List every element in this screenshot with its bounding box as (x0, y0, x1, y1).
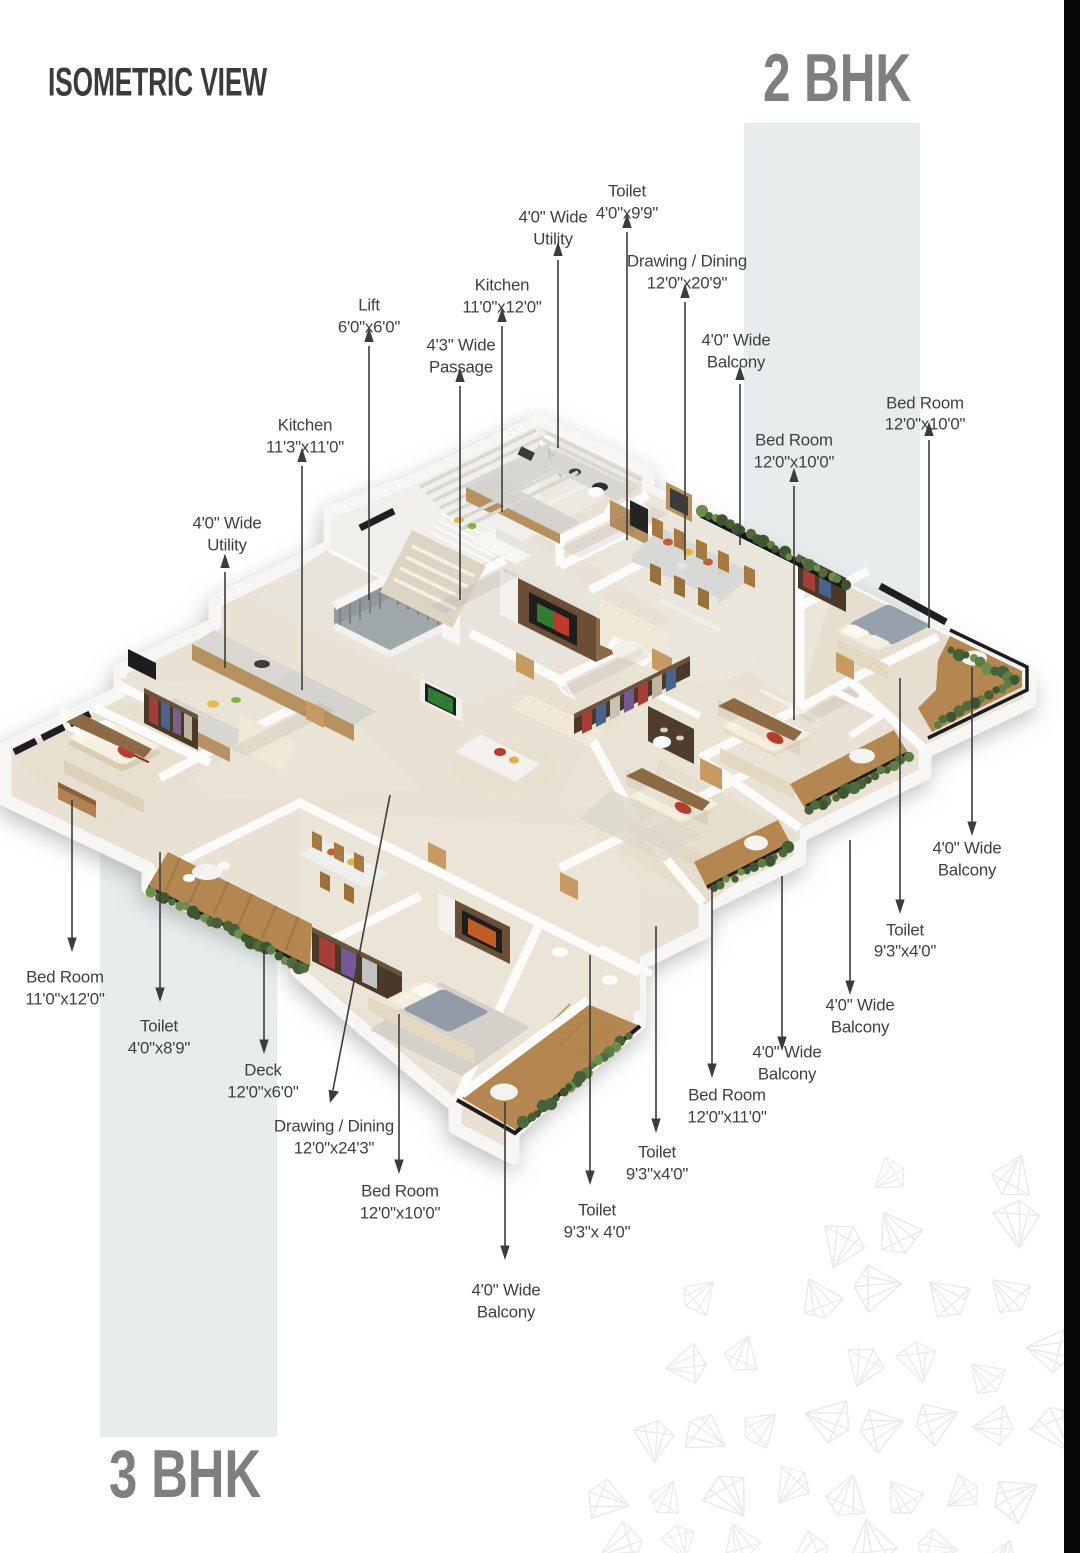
svg-text:Drawing / Dining: Drawing / Dining (627, 251, 747, 270)
svg-text:Toilet: Toilet (140, 1016, 179, 1035)
svg-text:4'0"x8'9": 4'0"x8'9" (128, 1038, 190, 1057)
svg-text:Balcony: Balcony (938, 860, 997, 879)
svg-text:Bed Room: Bed Room (688, 1085, 766, 1104)
svg-text:12'0"x20'9": 12'0"x20'9" (647, 273, 728, 292)
svg-text:Balcony: Balcony (758, 1064, 817, 1083)
svg-text:4'0" Wide: 4'0" Wide (519, 207, 588, 226)
svg-text:11'0"x12'0": 11'0"x12'0" (462, 297, 542, 316)
svg-text:Lift: Lift (358, 295, 380, 314)
svg-text:6'0"x6'0": 6'0"x6'0" (338, 317, 400, 336)
svg-text:Deck: Deck (244, 1060, 282, 1079)
svg-text:4'0" Wide: 4'0" Wide (702, 330, 771, 349)
svg-text:4'0" Wide: 4'0" Wide (826, 995, 895, 1014)
svg-text:Balcony: Balcony (477, 1302, 536, 1321)
svg-text:2 BHK: 2 BHK (763, 40, 911, 116)
svg-text:Kitchen: Kitchen (278, 415, 333, 434)
svg-text:9'3"x 4'0": 9'3"x 4'0" (564, 1222, 631, 1241)
svg-text:Toilet: Toilet (578, 1200, 617, 1219)
svg-text:ISOMETRIC VIEW: ISOMETRIC VIEW (48, 61, 267, 105)
svg-text:12'0"x10'0": 12'0"x10'0" (754, 452, 835, 471)
svg-text:Bed Room: Bed Room (755, 430, 833, 449)
svg-text:4'0"x9'9": 4'0"x9'9" (596, 203, 658, 222)
svg-text:12'0"x11'0": 12'0"x11'0" (687, 1107, 767, 1126)
svg-text:3 BHK: 3 BHK (109, 1436, 261, 1512)
svg-text:4'0" Wide: 4'0" Wide (753, 1042, 822, 1061)
svg-text:Balcony: Balcony (707, 352, 766, 371)
svg-text:Toilet: Toilet (608, 181, 647, 200)
svg-text:Balcony: Balcony (831, 1017, 890, 1036)
svg-text:Drawing / Dining: Drawing / Dining (274, 1116, 394, 1135)
svg-text:12'0"x10'0": 12'0"x10'0" (360, 1203, 441, 1222)
svg-text:4'3" Wide: 4'3" Wide (427, 335, 496, 354)
svg-text:9'3"x4'0": 9'3"x4'0" (626, 1164, 688, 1183)
svg-text:Bed Room: Bed Room (26, 967, 104, 986)
svg-text:12'0"x24'3": 12'0"x24'3" (294, 1138, 375, 1157)
svg-text:Toilet: Toilet (638, 1142, 677, 1161)
svg-text:11'0"x12'0": 11'0"x12'0" (25, 989, 105, 1008)
svg-text:Passage: Passage (429, 357, 493, 376)
svg-text:9'3"x4'0": 9'3"x4'0" (874, 941, 936, 960)
svg-text:4'0" Wide: 4'0" Wide (193, 513, 262, 532)
svg-text:12'0"x6'0": 12'0"x6'0" (227, 1082, 299, 1101)
svg-text:Utility: Utility (207, 535, 247, 554)
svg-text:4'0" Wide: 4'0" Wide (472, 1280, 541, 1299)
svg-text:Kitchen: Kitchen (475, 275, 530, 294)
svg-text:12'0"x10'0": 12'0"x10'0" (885, 414, 966, 433)
svg-text:Utility: Utility (533, 229, 573, 248)
svg-text:Toilet: Toilet (886, 920, 925, 939)
svg-text:11'3"x11'0": 11'3"x11'0" (266, 437, 344, 456)
svg-text:Bed Room: Bed Room (361, 1181, 439, 1200)
svg-text:4'0" Wide: 4'0" Wide (933, 838, 1002, 857)
svg-text:Bed Room: Bed Room (886, 393, 964, 412)
